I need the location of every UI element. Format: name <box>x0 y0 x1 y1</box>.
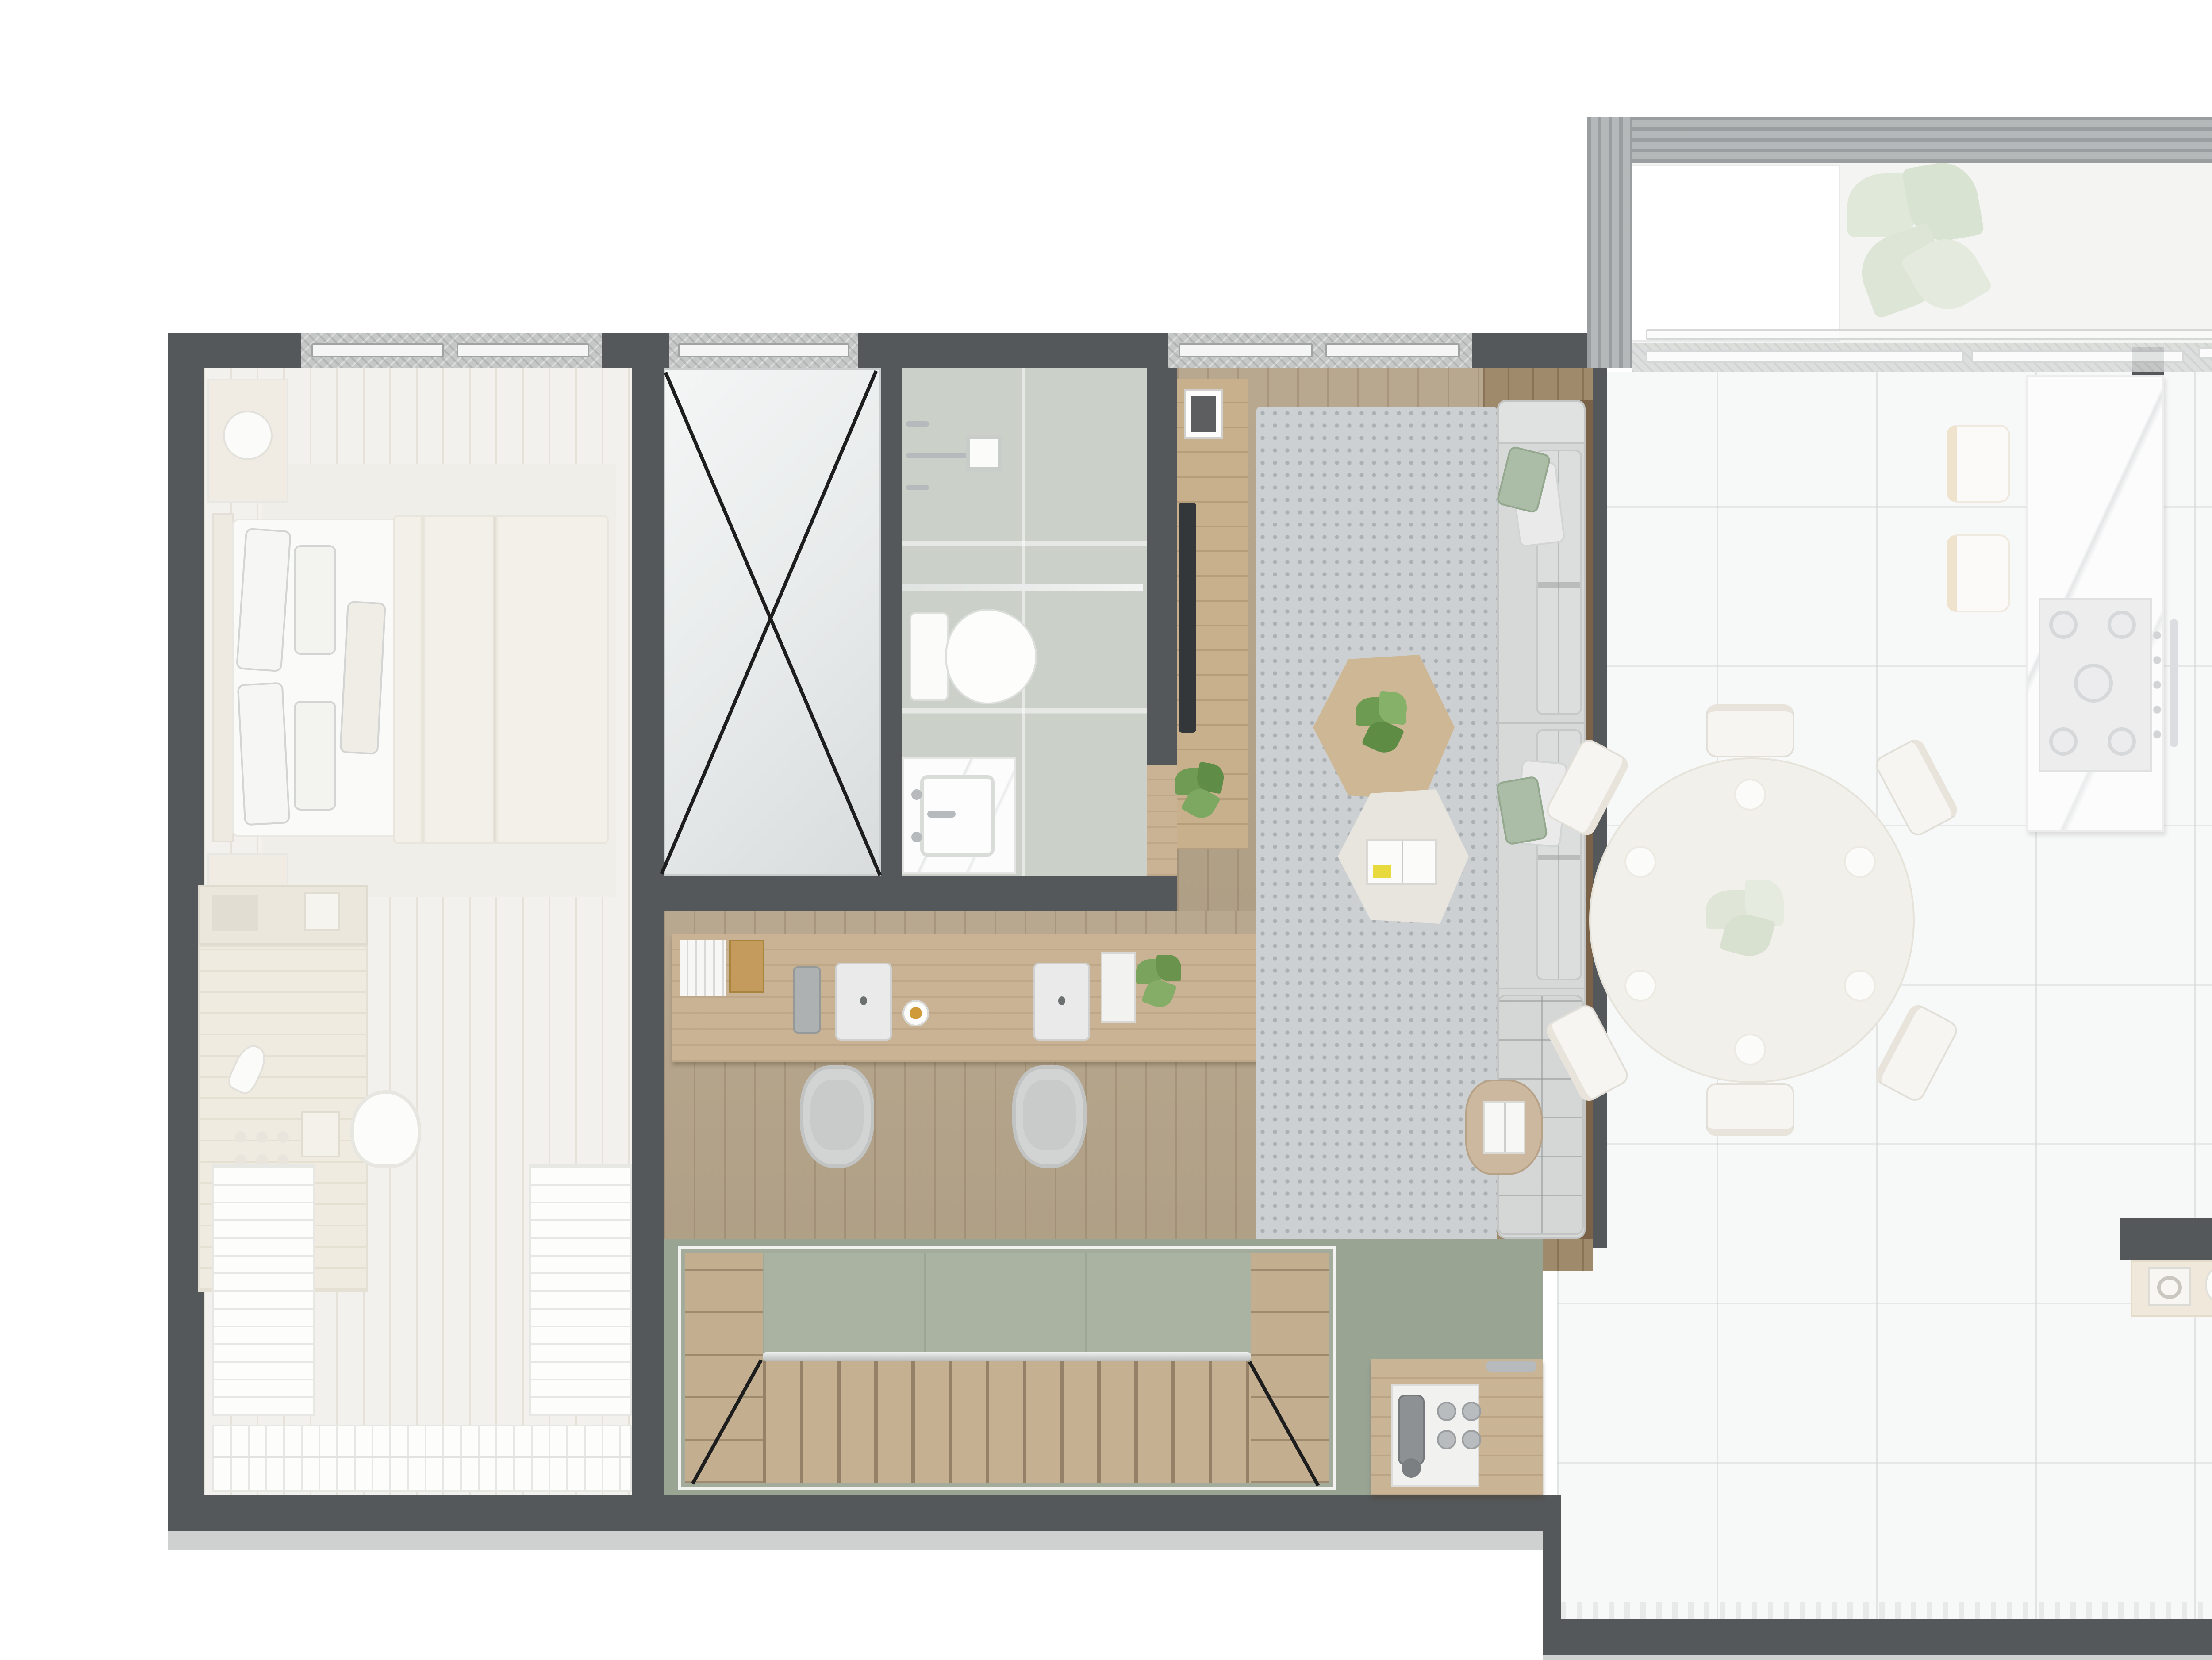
bar-stool-1 <box>1947 425 2010 503</box>
framed-portrait <box>1184 389 1223 439</box>
sideboard-vent <box>1486 1361 1536 1372</box>
cup-3 <box>1437 1430 1456 1449</box>
bed-accent-pillow <box>339 601 386 755</box>
bath-tap-handle-2 <box>911 832 922 842</box>
bed-pillow-4 <box>294 701 336 811</box>
shadow-bottom-right <box>1543 1655 2212 1660</box>
terrace-parapet-left <box>1587 117 1632 368</box>
desk-magazine-tan <box>729 940 764 993</box>
bedroom-window-sill <box>301 333 602 368</box>
wardrobe-right-column <box>529 1164 632 1416</box>
terrace-skylight-opening <box>1614 165 1840 342</box>
desk-plant <box>1133 956 1186 1016</box>
desk-chair-right <box>1012 1065 1087 1168</box>
stair-shelf-left <box>685 1253 763 1483</box>
shower-arm-icon <box>906 453 973 458</box>
toilet-tank <box>910 612 949 701</box>
bath-glass-partition <box>902 584 1143 591</box>
double-desk <box>672 934 1341 1062</box>
wall-half-height-shelf <box>2120 1218 2212 1260</box>
dining-plate-6 <box>1624 846 1656 878</box>
desk-chair-left <box>800 1065 874 1168</box>
stair-upper-landing <box>763 1253 1251 1356</box>
laptop-left-logo <box>860 996 867 1005</box>
shower-mixer-icon <box>906 421 929 427</box>
bed-pillow-2 <box>237 682 291 826</box>
cup-2 <box>1462 1402 1481 1421</box>
bed-pillow-3 <box>294 545 336 655</box>
bath-faucet-icon <box>927 811 956 818</box>
bar-stool-2 <box>1947 534 2010 612</box>
terrace-glass-rail <box>1646 329 2212 340</box>
side-table-book <box>1483 1101 1525 1154</box>
dining-plate-3 <box>1844 970 1876 1002</box>
wardrobe-bottom-row <box>212 1425 632 1492</box>
bed-pillow-1 <box>236 528 292 672</box>
shower-mixer2-icon <box>906 485 929 490</box>
dining-chair-top <box>1706 704 1794 757</box>
console-plant <box>1171 761 1232 825</box>
dining-plate-2 <box>1844 846 1876 878</box>
wall-bath-right <box>1147 333 1177 765</box>
island-oven-handle <box>2170 619 2178 747</box>
desk-book-stack <box>680 940 726 996</box>
floor-plan-canvas <box>0 0 2212 1660</box>
bath-tap-handle-1 <box>911 789 922 800</box>
coffee-machine-dial <box>1402 1458 1421 1478</box>
stair-treads <box>763 1361 1251 1483</box>
terrace-parapet-top <box>1601 117 2212 163</box>
vanity-niche-tray <box>212 895 258 931</box>
terrace-plant <box>1840 163 1993 340</box>
vanity-niche-box <box>304 892 340 931</box>
wall-wet-rooms-bottom <box>664 876 1177 911</box>
sofa-section-line-1 <box>1499 722 1584 724</box>
bed-headboard <box>212 513 234 842</box>
coffee-machine <box>1398 1395 1425 1465</box>
shaft-window-sill <box>669 333 858 368</box>
wardrobe-left-column <box>212 1164 315 1416</box>
kitchen-sliding-door-sill <box>1632 343 2212 372</box>
cup-1 <box>1437 1402 1456 1421</box>
open-magazine <box>1366 839 1437 885</box>
shadow-bottom-left <box>168 1531 1557 1550</box>
wall-shaft-bath-divider <box>881 368 902 876</box>
shelf-sculpture <box>2148 1267 2191 1306</box>
vanity-chair <box>350 1090 421 1168</box>
nightstand-lamp-top <box>223 411 273 460</box>
bed-duvet <box>393 515 609 844</box>
desk-magazine-white <box>1101 952 1136 1023</box>
desk-speaker <box>793 966 821 1034</box>
wardrobe-rail-line <box>212 1456 632 1458</box>
sofa-section-line-2 <box>1499 988 1584 989</box>
dining-plate-1 <box>1734 779 1766 811</box>
dining-plate-5 <box>1624 970 1656 1002</box>
island-knob-dots <box>2152 623 2162 747</box>
wall-bottom-left <box>168 1495 1557 1531</box>
living-window-sill <box>1168 333 1472 368</box>
wall-bedroom-divider <box>632 333 664 1531</box>
island-cooktop <box>2039 598 2152 772</box>
stair-glass-rail <box>763 1352 1251 1361</box>
dining-centerpiece <box>1699 876 1805 964</box>
laptop-right-logo <box>1058 996 1065 1005</box>
kitchen-rear-glass <box>1561 1602 2212 1619</box>
coffee-cup-inner <box>910 1007 922 1019</box>
stair-shelf-right <box>1251 1253 1329 1483</box>
dining-plate-4 <box>1734 1034 1766 1065</box>
hex-table-plant <box>1352 690 1416 757</box>
shower-head-icon <box>966 435 1002 471</box>
sofa-armrest-top <box>1499 402 1584 444</box>
dining-chair-bottom <box>1706 1083 1794 1136</box>
wall-bottom-right <box>1543 1619 2212 1655</box>
cup-4 <box>1462 1430 1481 1449</box>
cosmetics-palette <box>301 1111 340 1157</box>
tv <box>1179 503 1196 733</box>
